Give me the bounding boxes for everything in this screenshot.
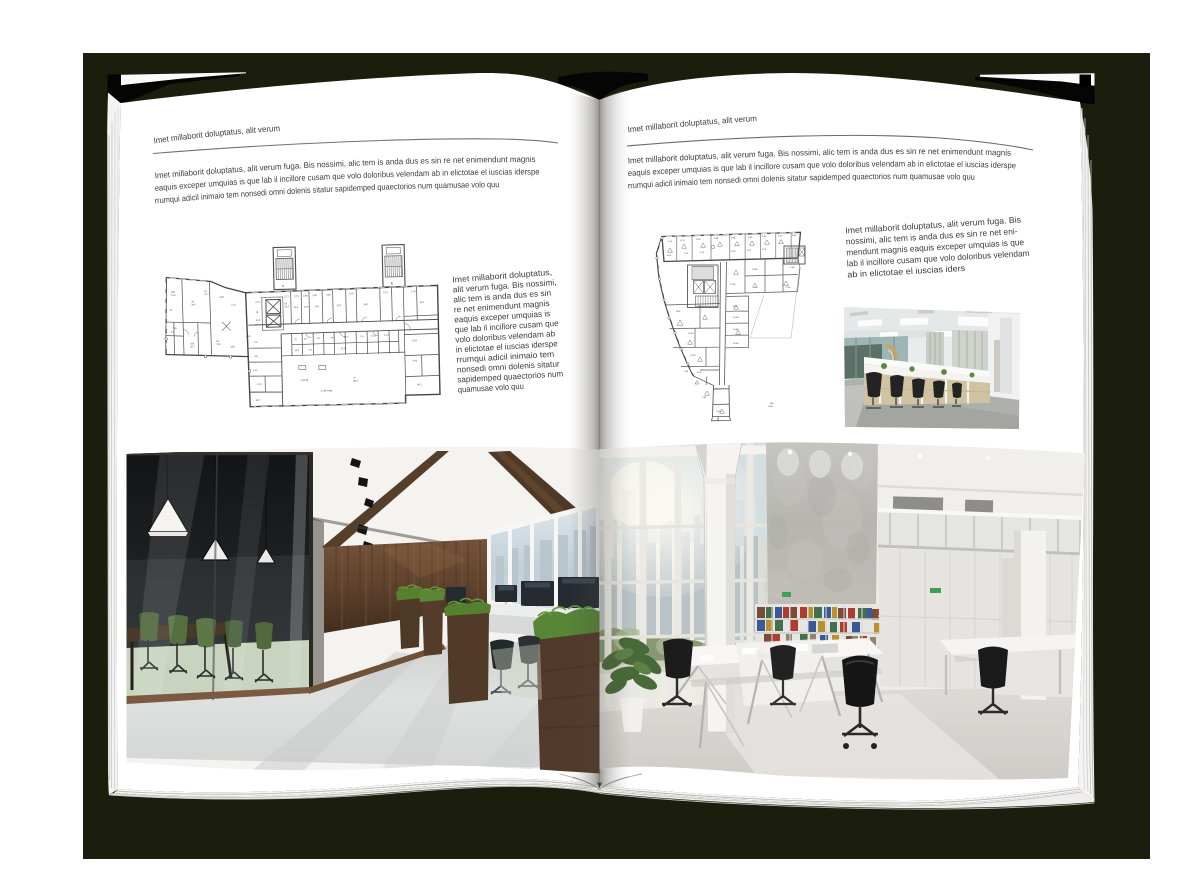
svg-text:1.43: 1.43 <box>253 370 258 372</box>
svg-text:21.8: 21.8 <box>256 320 261 322</box>
svg-text:2.75: 2.75 <box>294 296 299 298</box>
svg-text:2.30: 2.30 <box>312 295 317 297</box>
svg-text:12.1: 12.1 <box>257 384 262 386</box>
svg-text:36.2: 36.2 <box>191 304 196 306</box>
svg-text:3.80: 3.80 <box>326 294 331 296</box>
svg-text:12.6: 12.6 <box>171 295 176 297</box>
svg-text:24.88: 24.88 <box>752 269 758 271</box>
svg-text:11.8: 11.8 <box>314 306 319 308</box>
svg-text:19.66: 19.66 <box>733 343 739 345</box>
svg-text:1.45: 1.45 <box>411 291 416 293</box>
svg-text:10.88: 10.88 <box>733 329 739 331</box>
svg-text:90.2: 90.2 <box>417 384 422 386</box>
svg-text:12.6: 12.6 <box>216 344 221 346</box>
svg-text:37.7: 37.7 <box>204 294 209 296</box>
svg-text:5.75: 5.75 <box>349 293 354 295</box>
svg-text:16.36: 16.36 <box>688 333 694 335</box>
svg-text:40.7: 40.7 <box>190 346 195 348</box>
svg-text:4.43: 4.43 <box>246 336 251 338</box>
svg-text:5.54: 5.54 <box>412 340 417 342</box>
svg-text:МБ: МБ <box>770 403 774 405</box>
svg-text:2.72: 2.72 <box>284 296 289 298</box>
svg-text:32.2: 32.2 <box>419 302 424 304</box>
svg-text:28.5: 28.5 <box>363 304 368 306</box>
svg-text:29.7: 29.7 <box>256 400 261 402</box>
svg-text:11.7: 11.7 <box>344 337 349 339</box>
svg-text:10.36: 10.36 <box>716 411 722 413</box>
svg-text:13.8: 13.8 <box>293 307 298 309</box>
svg-text:12.66: 12.66 <box>730 284 736 286</box>
svg-text:5.75: 5.75 <box>383 292 388 294</box>
svg-text:5.11: 5.11 <box>231 304 236 306</box>
svg-text:16.5: 16.5 <box>336 305 341 307</box>
svg-text:14.5: 14.5 <box>294 350 299 352</box>
svg-text:25.28: 25.28 <box>340 348 347 350</box>
svg-text:1346: 1346 <box>768 406 774 408</box>
svg-text:2-ой этаж: 2-ой этаж <box>321 388 333 392</box>
svg-text:2.96: 2.96 <box>219 297 224 299</box>
svg-text:21.8: 21.8 <box>284 306 289 308</box>
svg-text:2.44: 2.44 <box>371 335 376 337</box>
svg-text:3.56: 3.56 <box>230 346 235 348</box>
svg-text:10.8: 10.8 <box>304 306 309 308</box>
svg-text:140.88: 140.88 <box>301 380 309 382</box>
svg-text:86.3: 86.3 <box>353 381 358 383</box>
svg-text:10.66: 10.66 <box>733 317 739 319</box>
svg-text:1.72: 1.72 <box>384 335 389 337</box>
svg-text:2.72: 2.72 <box>255 302 260 304</box>
svg-text:2.90: 2.90 <box>303 296 308 298</box>
svg-text:12.88: 12.88 <box>690 355 696 357</box>
svg-text:5.43: 5.43 <box>413 360 418 362</box>
